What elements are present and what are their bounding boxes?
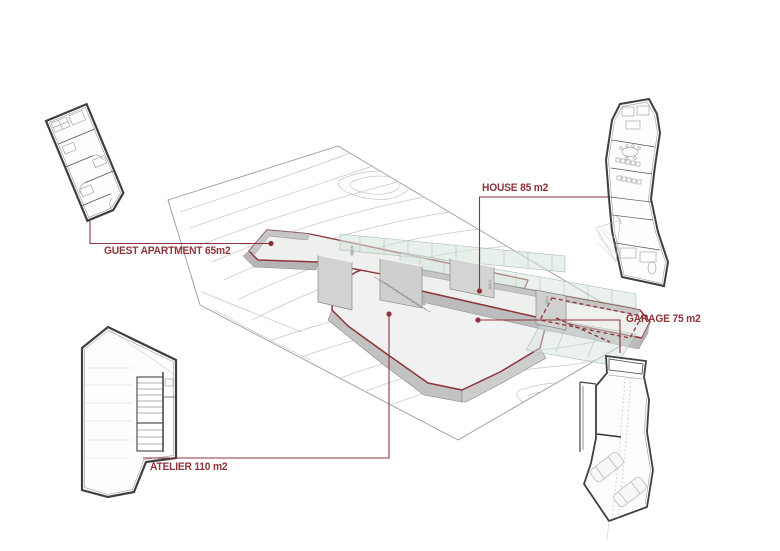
architecture-diagram-page: GUEST APARTMENT 65m2 HOUSE 85 m2 GARAGE … [0, 0, 780, 551]
label-house: HOUSE 85 m2 [482, 182, 548, 194]
label-garage: GARAGE 75 m2 [626, 313, 701, 325]
label-guest-apartment: GUEST APARTMENT 65m2 [104, 245, 230, 257]
label-atelier: ATELIER 110 m2 [150, 461, 227, 473]
floor-plan-house [596, 99, 668, 286]
garage-left-wall [580, 382, 596, 452]
floor-plan-garage [580, 356, 653, 540]
floor-plan-guest-apartment [46, 104, 128, 221]
axonometric-diagram [0, 0, 780, 551]
